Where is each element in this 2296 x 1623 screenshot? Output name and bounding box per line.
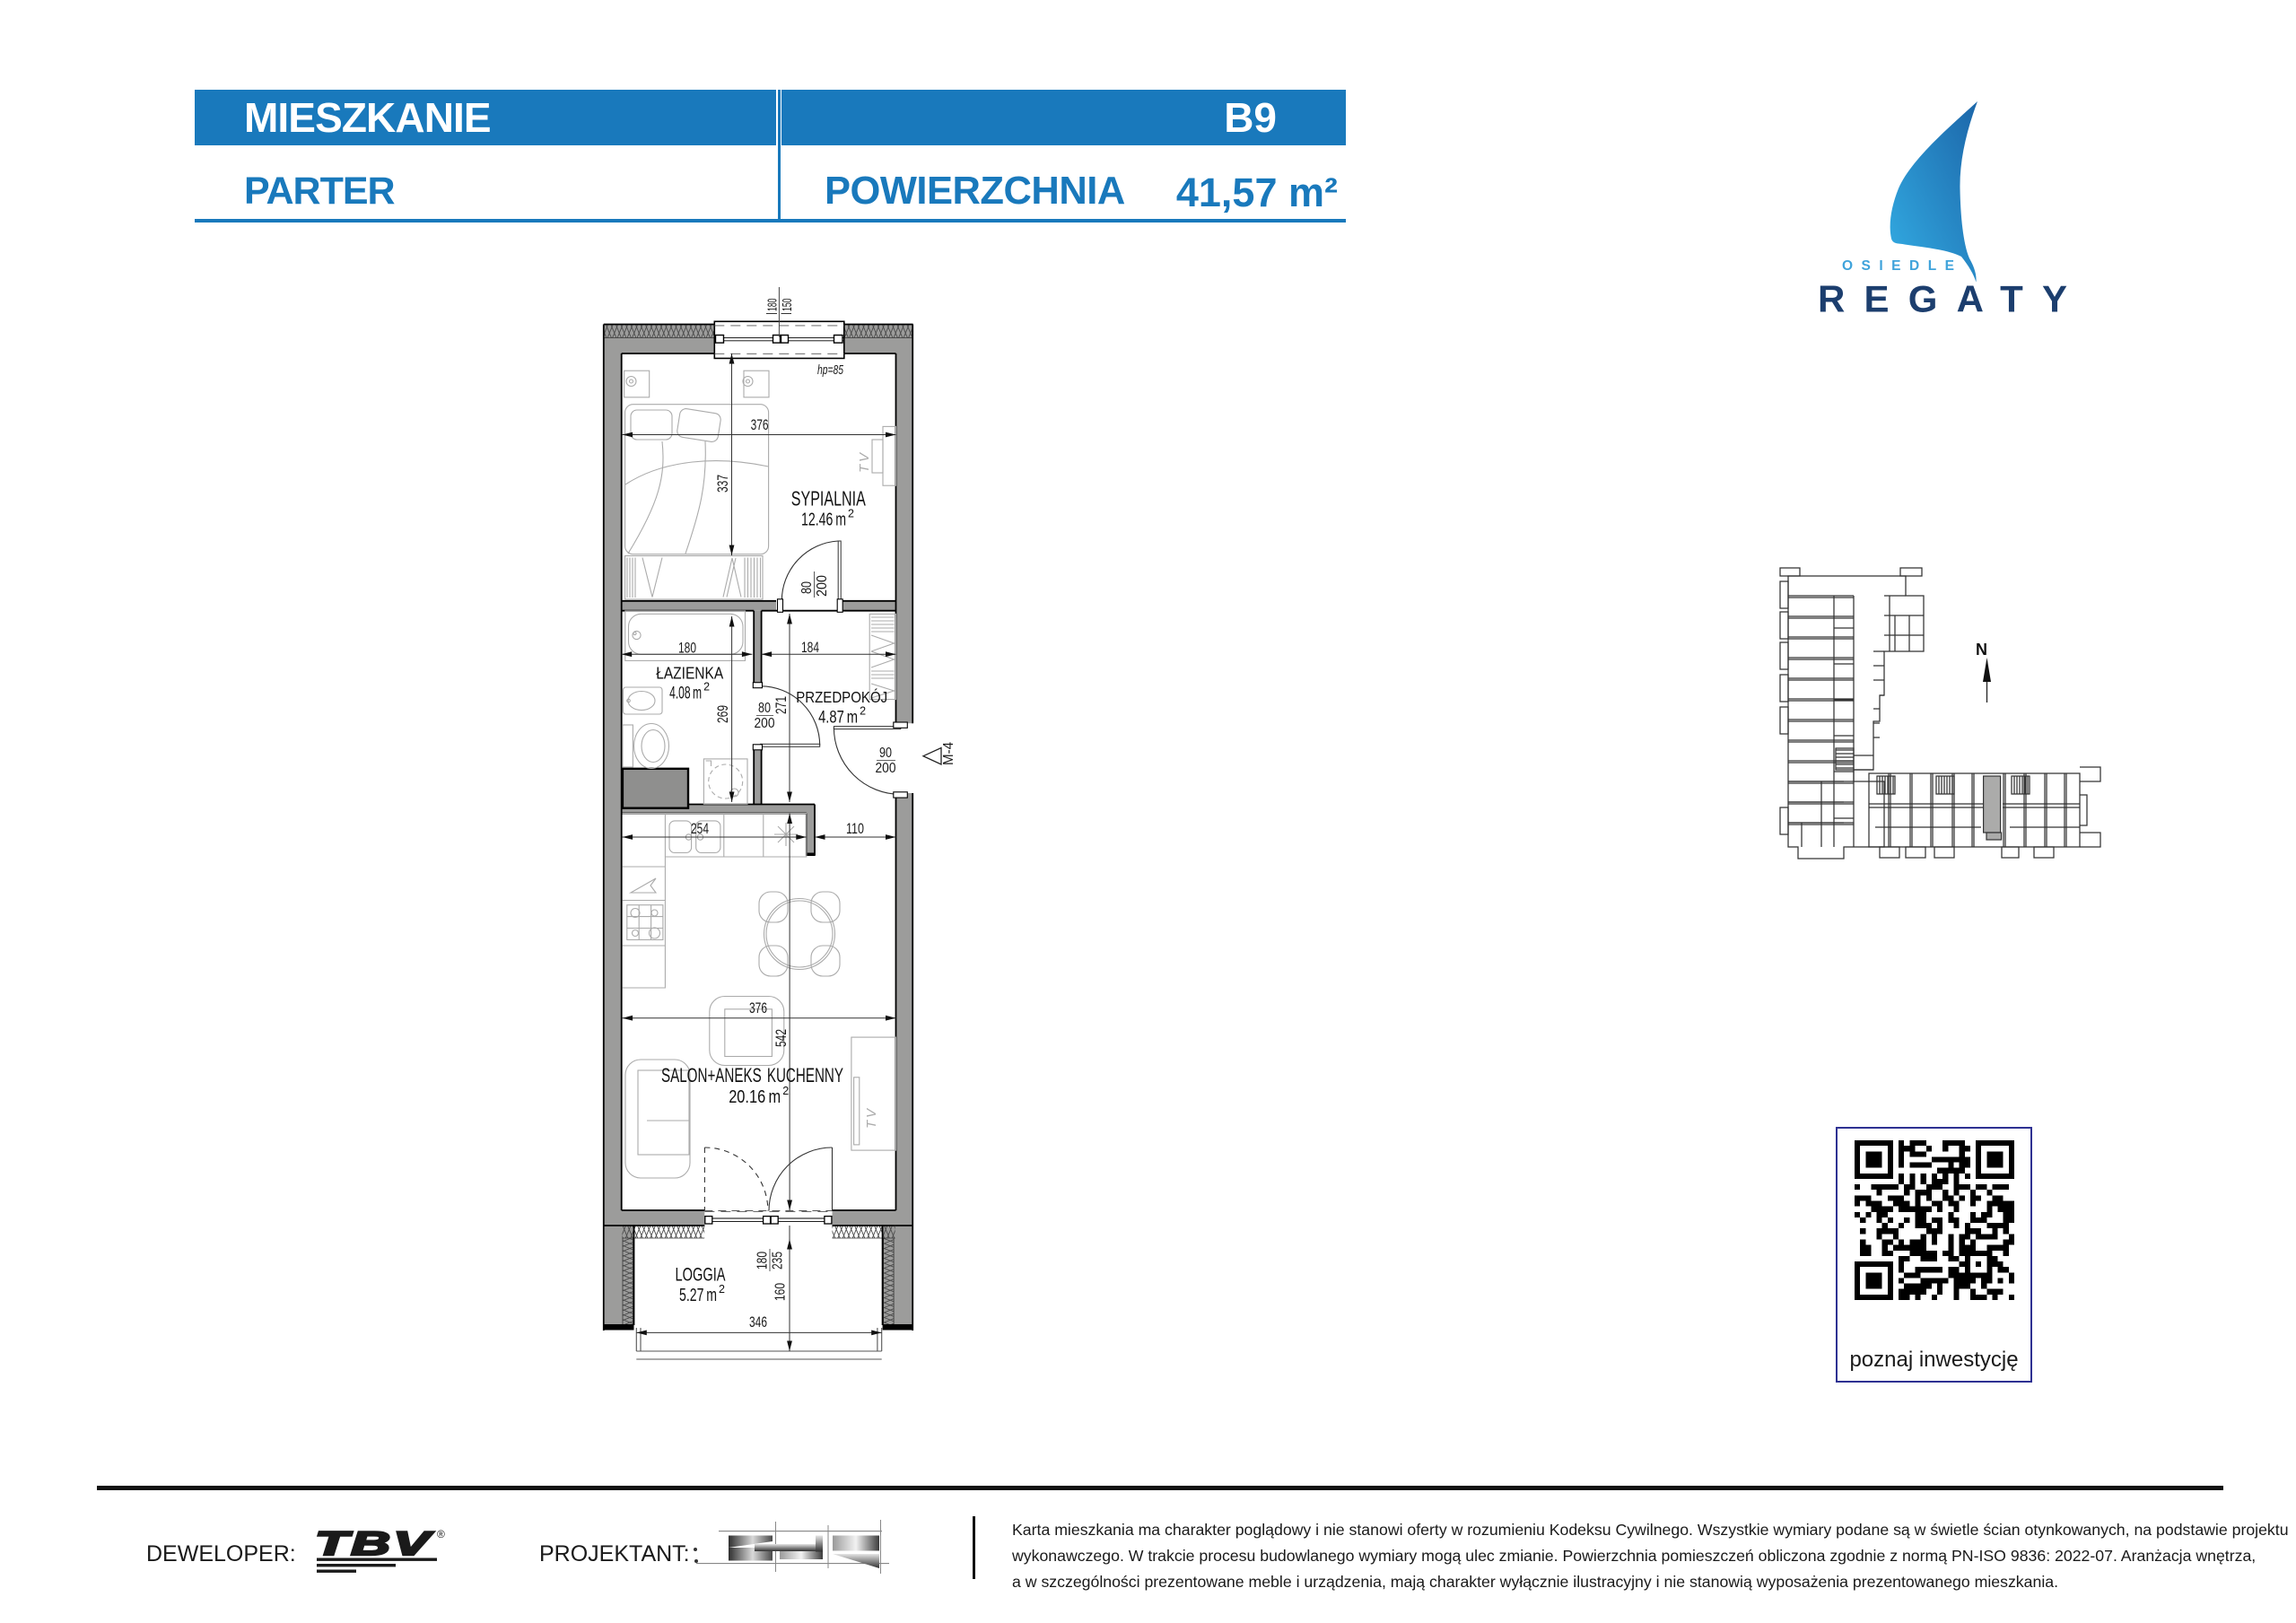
svg-text:180: 180	[765, 299, 781, 312]
svg-text:2: 2	[703, 681, 710, 694]
svg-text:200: 200	[876, 761, 896, 776]
svg-text:346: 346	[749, 1313, 767, 1331]
svg-text:4.08 m: 4.08 m	[669, 685, 702, 703]
svg-text:200: 200	[815, 575, 830, 597]
svg-text:20.16 m: 20.16 m	[729, 1087, 781, 1107]
svg-text:110: 110	[846, 820, 864, 837]
svg-text:254: 254	[691, 820, 709, 837]
svg-text:80: 80	[758, 701, 771, 716]
svg-text:SALON+ANEKS KUCHENNY: SALON+ANEKS KUCHENNY	[661, 1064, 843, 1086]
svg-text:TBV: TBV	[315, 1525, 434, 1562]
svg-text:542: 542	[773, 1029, 790, 1047]
svg-text:N: N	[1976, 641, 1987, 659]
svg-text:376: 376	[749, 999, 767, 1017]
svg-text:PRZEDPOKÓJ: PRZEDPOKÓJ	[796, 687, 887, 706]
svg-text:80: 80	[799, 581, 815, 594]
svg-text:REGATY: REGATY	[1818, 278, 2067, 320]
svg-text:2: 2	[860, 704, 866, 717]
svg-text:160: 160	[773, 1283, 789, 1301]
svg-text:ŁAZIENKA: ŁAZIENKA	[656, 664, 723, 682]
svg-text:®: ®	[437, 1528, 445, 1540]
svg-text:TV: TV	[857, 451, 872, 473]
svg-text:4.87 m: 4.87 m	[818, 707, 858, 727]
svg-text:271: 271	[773, 696, 790, 714]
svg-text:376: 376	[751, 416, 769, 433]
svg-text:12.46 m: 12.46 m	[801, 510, 846, 530]
svg-text:184: 184	[801, 639, 819, 656]
svg-text:180: 180	[678, 640, 696, 657]
svg-text:hp=85: hp=85	[817, 362, 843, 378]
svg-text:2: 2	[848, 508, 854, 520]
svg-text:150: 150	[780, 299, 795, 312]
svg-text:5.27 m: 5.27 m	[679, 1286, 717, 1305]
svg-text:200: 200	[755, 716, 775, 731]
svg-text:2: 2	[782, 1085, 789, 1097]
svg-text:M-4: M-4	[941, 742, 956, 765]
svg-text:180: 180	[755, 1252, 771, 1270]
svg-text:269: 269	[714, 705, 731, 723]
svg-text:SYPIALNIA: SYPIALNIA	[791, 487, 866, 510]
svg-text:235: 235	[771, 1252, 786, 1270]
svg-text:OSIEDLE: OSIEDLE	[1842, 258, 1954, 274]
svg-text:90: 90	[879, 746, 892, 761]
svg-text:TV: TV	[864, 1107, 879, 1129]
svg-text:2: 2	[719, 1283, 725, 1296]
svg-text:337: 337	[714, 475, 731, 493]
